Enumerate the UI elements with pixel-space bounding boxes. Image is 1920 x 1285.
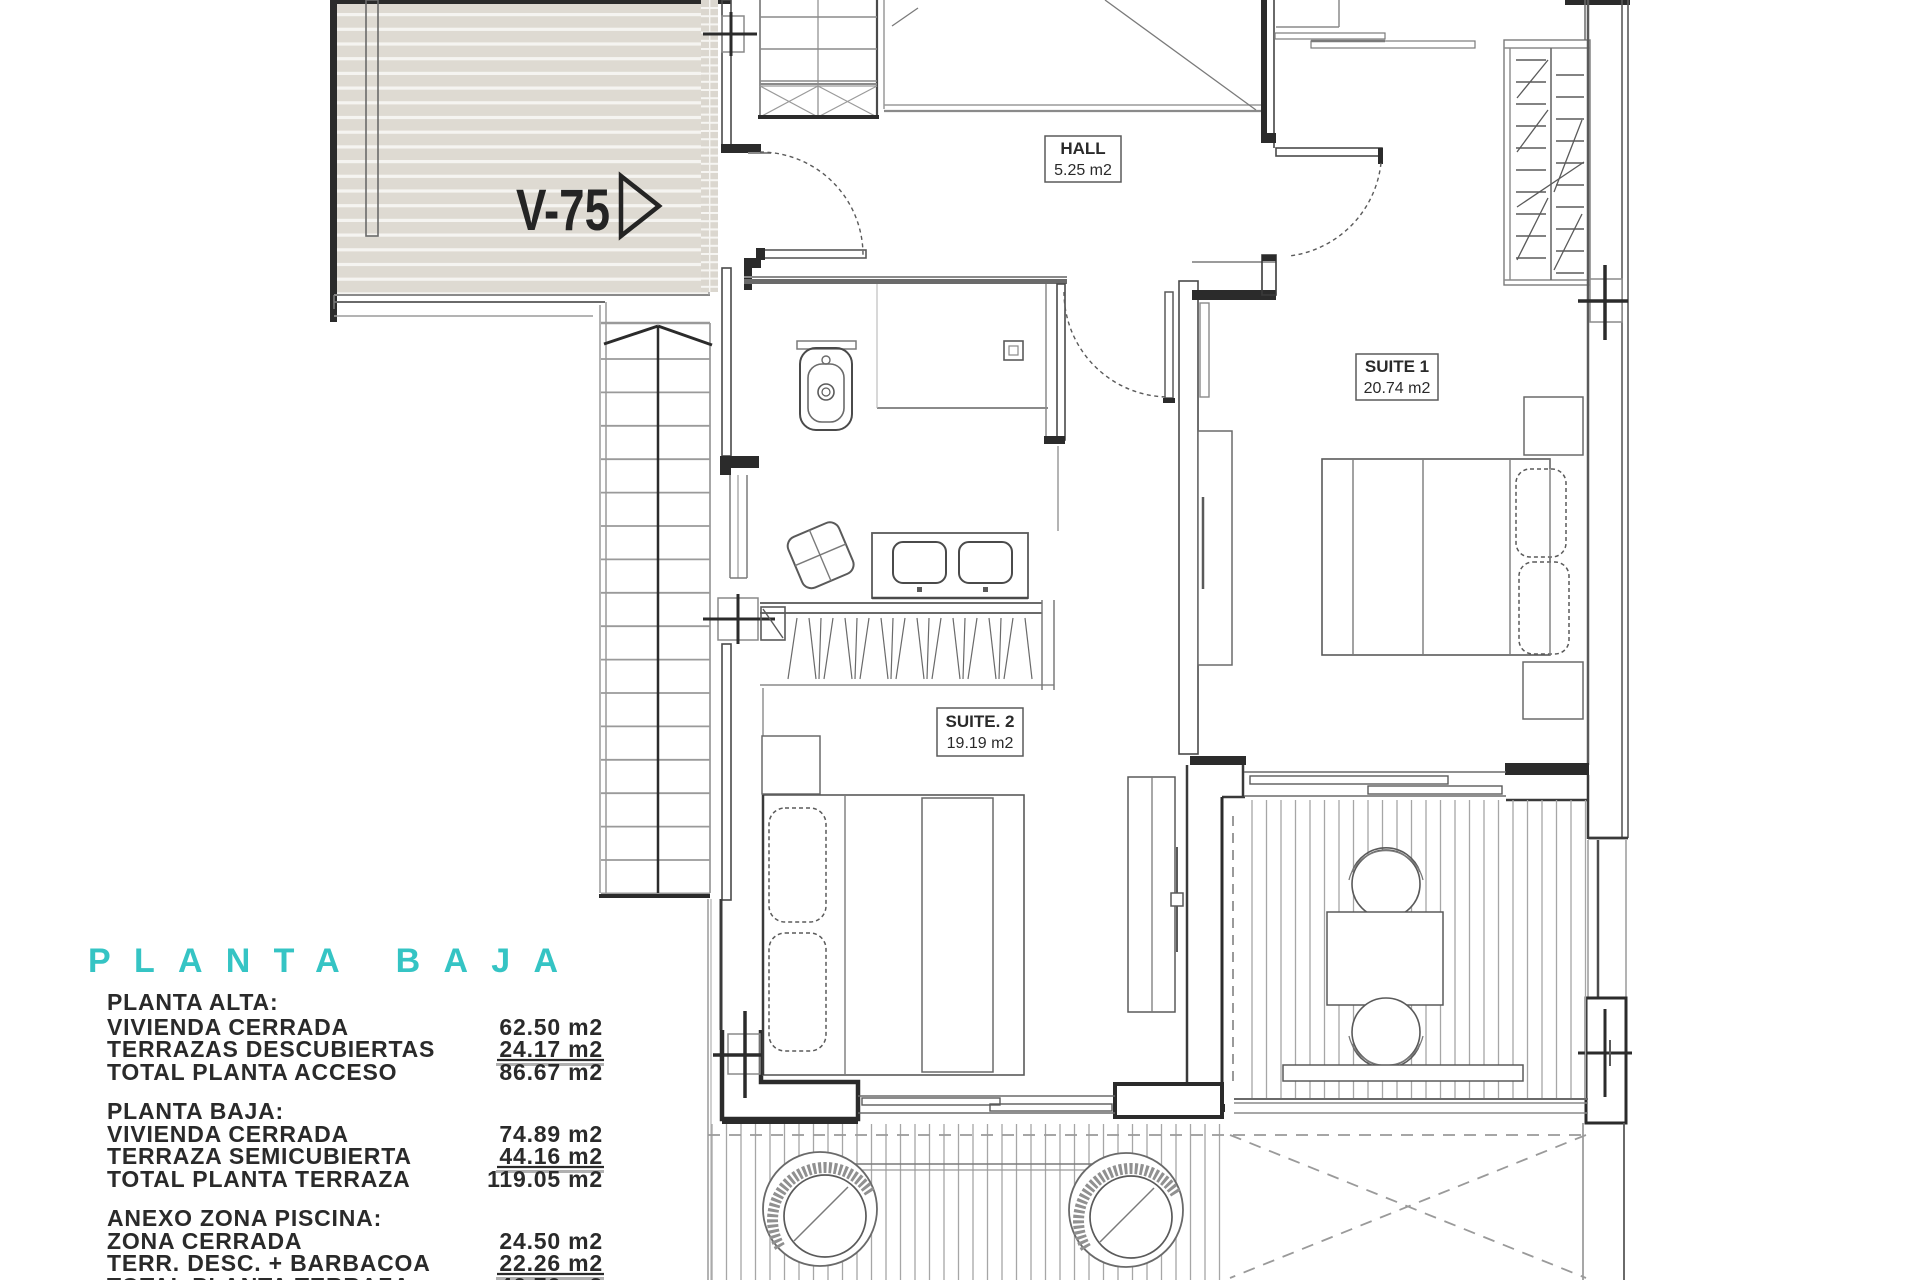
svg-text:SUITE 1: SUITE 1 xyxy=(1365,357,1429,376)
svg-text:TOTAL PLANTA TERRAZA: TOTAL PLANTA TERRAZA xyxy=(107,1273,410,1280)
svg-text:5.25 m2: 5.25 m2 xyxy=(1054,162,1112,179)
svg-text:HALL: HALL xyxy=(1060,139,1105,158)
svg-text:20.74 m2: 20.74 m2 xyxy=(1364,380,1431,397)
svg-text:SUITE. 2: SUITE. 2 xyxy=(946,712,1015,731)
svg-text:19.19 m2: 19.19 m2 xyxy=(947,735,1014,752)
svg-text:119.05 m2: 119.05 m2 xyxy=(487,1166,603,1192)
svg-text:PLANTA ALTA:: PLANTA ALTA: xyxy=(107,989,278,1015)
svg-text:V-75: V-75 xyxy=(516,178,610,243)
svg-text:46.76 m2: 46.76 m2 xyxy=(499,1273,603,1280)
svg-text:86.67 m2: 86.67 m2 xyxy=(499,1059,603,1085)
svg-text:TOTAL PLANTA TERRAZA: TOTAL PLANTA TERRAZA xyxy=(107,1166,410,1192)
svg-text:TOTAL PLANTA ACCESO: TOTAL PLANTA ACCESO xyxy=(107,1059,397,1085)
